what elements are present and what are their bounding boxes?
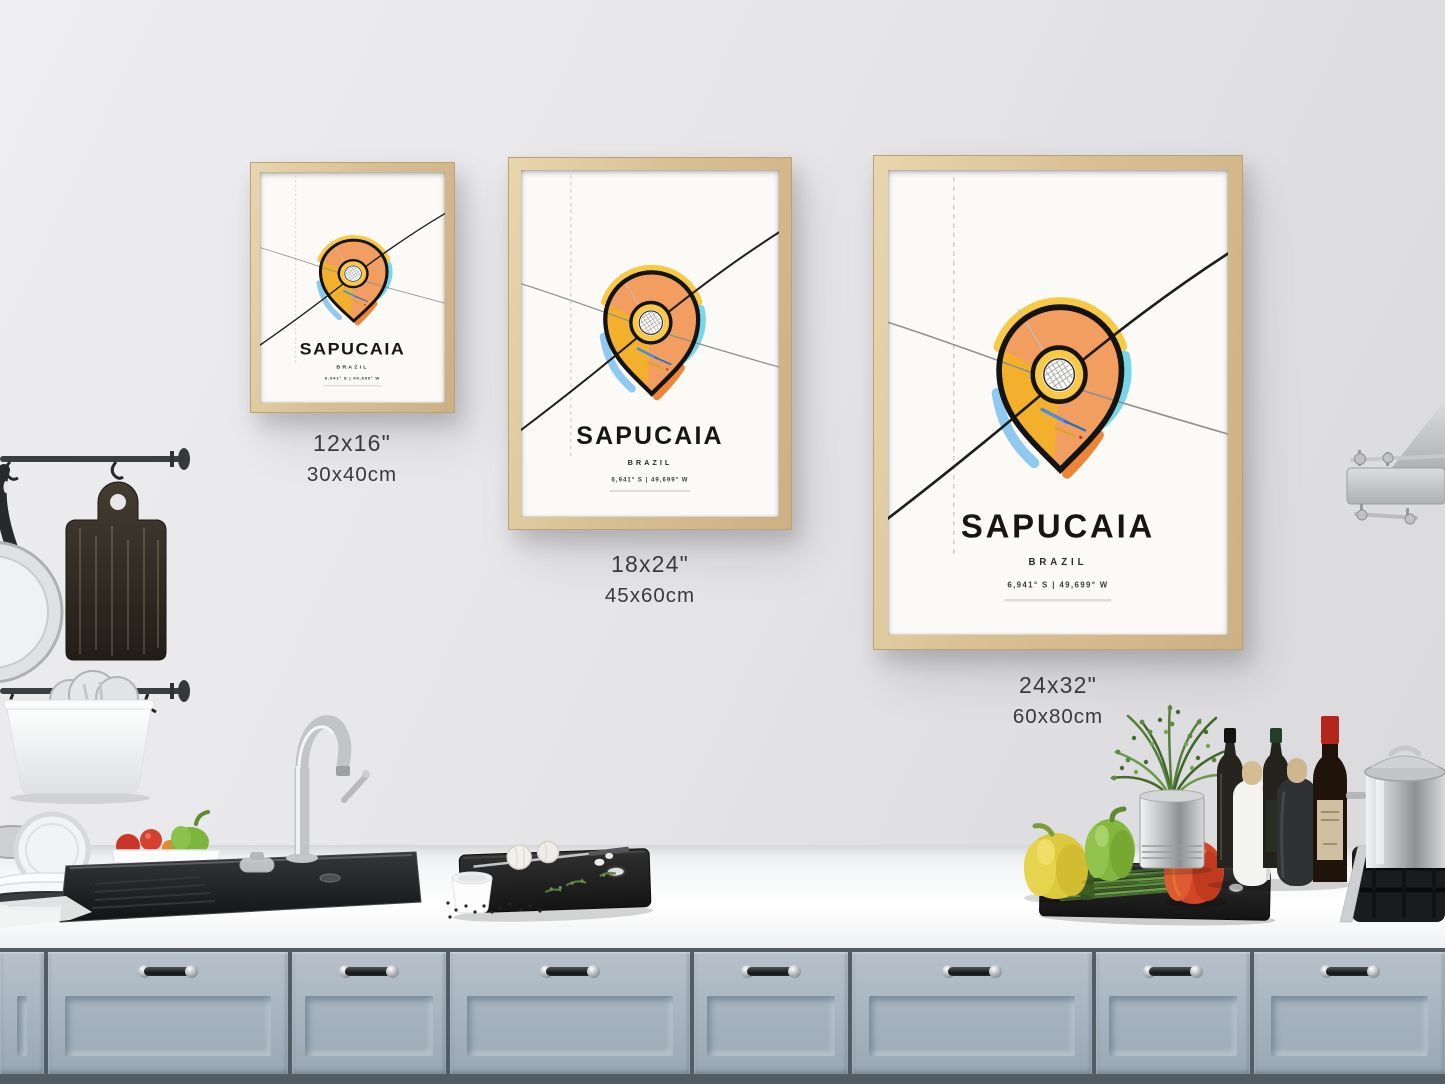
poster-coordinates: 6,941° S | 49,699° W (1007, 580, 1108, 589)
cabinet-door-panel (1271, 996, 1428, 1056)
poster-coordinates: 6,941° S | 49,699° W (612, 477, 689, 483)
cabinet-door (1096, 952, 1250, 1074)
cabinet-door-panel (707, 996, 835, 1056)
poster-credit-line (1005, 599, 1112, 602)
cabinet-door (48, 952, 288, 1074)
map-poster-medium: SAPUCAIA BRAZIL 6,941° S | 49,699° W (521, 170, 779, 517)
poster-frame-medium: SAPUCAIA BRAZIL 6,941° S | 49,699° W (508, 157, 792, 530)
size-label-small: 12x16" 30x40cm (262, 430, 442, 487)
cabinet-handle (540, 965, 600, 978)
size-label-medium: 18x24" 45x60cm (560, 551, 740, 608)
map-poster-small: SAPUCAIA BRAZIL 6,941° S | 49,699° W (260, 172, 445, 403)
cabinet-handle (138, 965, 198, 978)
size-cm: 60x80cm (968, 705, 1148, 729)
poster-credit-line (610, 490, 691, 492)
size-inches: 12x16" (262, 430, 442, 457)
size-inches: 18x24" (560, 551, 740, 578)
cabinet-door-panel (1109, 996, 1237, 1056)
cabinet-door-panel (17, 996, 27, 1056)
cabinet-handle (339, 965, 399, 978)
cabinet-handle (1143, 965, 1203, 978)
poster-frame-small: SAPUCAIA BRAZIL 6,941° S | 49,699° W (250, 162, 455, 413)
size-label-large: 24x32" 60x80cm (968, 672, 1148, 729)
poster-country: BRAZIL (1028, 557, 1087, 568)
cabinet-door-panel (467, 996, 673, 1056)
cabinet-door-panel (305, 996, 433, 1056)
cabinet-handle (1320, 965, 1380, 978)
kitchen-poster-mockup: SAPUCAIA BRAZIL 6,941° S | 49,699° W SAP… (0, 0, 1445, 1084)
cabinet-door-panel (869, 996, 1075, 1056)
poster-title: SAPUCAIA (961, 508, 1155, 545)
cabinet-door (0, 952, 44, 1074)
poster-title: SAPUCAIA (576, 422, 723, 450)
poster-country: BRAZIL (628, 458, 673, 467)
size-inches: 24x32" (968, 672, 1148, 699)
size-cm: 45x60cm (560, 584, 740, 608)
cabinet-handle (942, 965, 1002, 978)
cabinet-door (292, 952, 446, 1074)
cabinet-door-panel (65, 996, 271, 1056)
kitchen-countertop (0, 845, 1445, 948)
map-poster-large: SAPUCAIA BRAZIL 6,941° S | 49,699° W (888, 170, 1228, 635)
poster-title: SAPUCAIA (300, 339, 406, 358)
cabinet-door (450, 952, 690, 1074)
cabinet-door (852, 952, 1092, 1074)
cabinet-door (694, 952, 848, 1074)
poster-credit-line (324, 385, 382, 386)
cabinet-door (1254, 952, 1445, 1074)
cabinet-handle (741, 965, 801, 978)
poster-frame-large: SAPUCAIA BRAZIL 6,941° S | 49,699° W (873, 155, 1243, 650)
poster-coordinates: 6,941° S | 49,699° W (325, 375, 380, 380)
kitchen-cabinets (0, 948, 1445, 1084)
size-cm: 30x40cm (262, 463, 442, 487)
poster-country: BRAZIL (336, 364, 368, 370)
